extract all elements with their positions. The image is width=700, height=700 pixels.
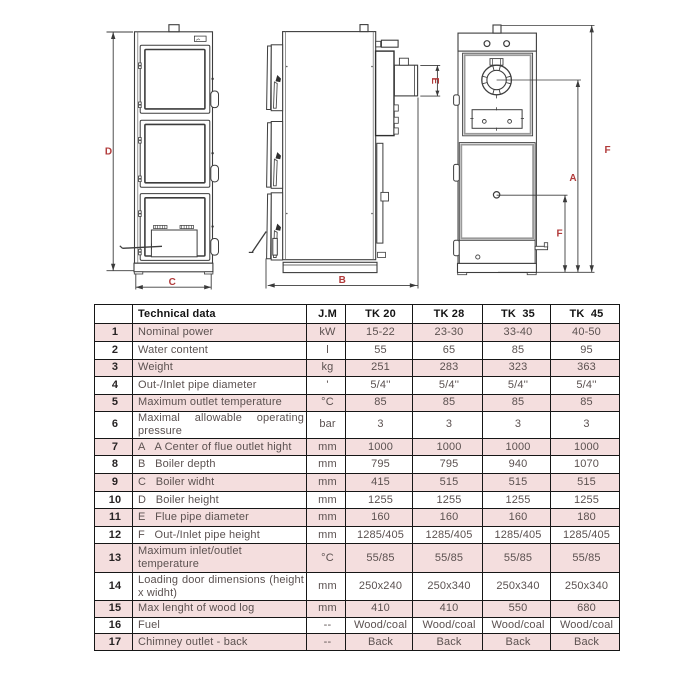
svg-text:D: D [105, 147, 112, 158]
svg-text:F: F [556, 229, 562, 240]
svg-text:C: C [169, 277, 176, 288]
svg-text:E: E [429, 78, 440, 85]
svg-text:F: F [604, 145, 610, 156]
svg-text:B: B [339, 275, 346, 286]
svg-text:A: A [569, 173, 576, 184]
